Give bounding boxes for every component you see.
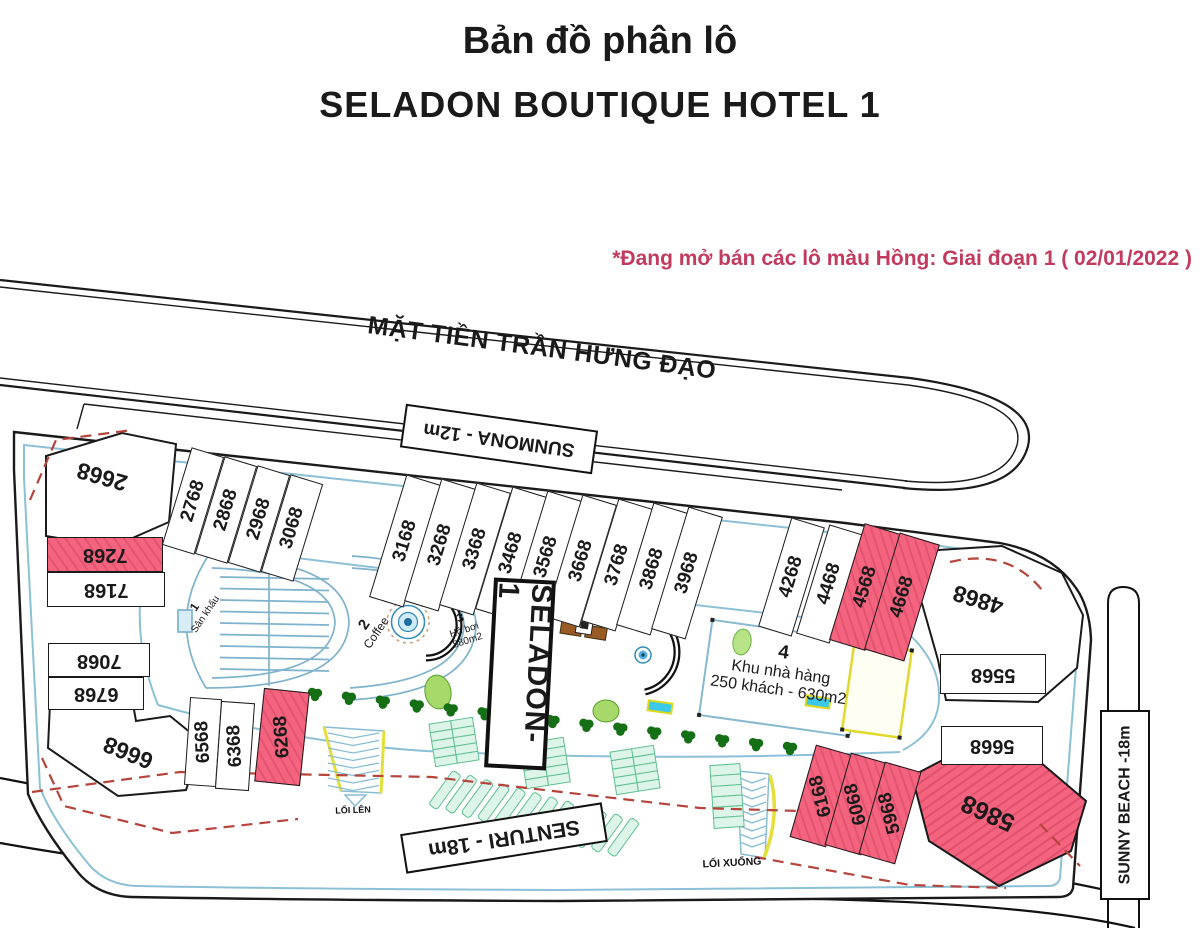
lot-number: 3668 — [564, 538, 597, 585]
lot-number: 6168 — [805, 773, 837, 819]
crosswalk-markers — [647, 700, 672, 713]
lot-5668: 5668 — [941, 726, 1043, 765]
lot-number: 4668 — [885, 574, 918, 621]
lot-6768: 6768 — [48, 677, 144, 710]
lot-number: 6768 — [74, 682, 119, 705]
lot-number: 5668 — [970, 734, 1015, 757]
lot-7268: 7268 — [47, 537, 163, 572]
lot-7068: 7068 — [48, 643, 150, 677]
lot-number: 5568 — [971, 663, 1016, 686]
street-label-sunny-beach: SUNNY BEACH -18m — [1100, 710, 1150, 900]
site-plan-drawing — [0, 0, 1200, 928]
page-subtitle: SELADON BOUTIQUE HOTEL 1 — [0, 84, 1200, 126]
lot-number: 4268 — [774, 554, 807, 601]
sunny-beach-text: SUNNY BEACH -18m — [1116, 726, 1134, 885]
lot-number: 7168 — [84, 578, 129, 601]
ramp-up-label: LỐI LÊN — [323, 804, 383, 816]
page-title: Bản đồ phân lô — [0, 20, 1200, 63]
lot-6368: 6368 — [215, 701, 255, 791]
lot-5568: 5568 — [940, 654, 1046, 694]
lot-number: 3368 — [458, 526, 491, 573]
lot-number: 6268 — [270, 715, 295, 759]
lot-number: 6568 — [191, 720, 215, 763]
lot-number: 3968 — [670, 550, 703, 597]
seladon-sign-text: SELADON- 1 — [489, 582, 550, 766]
lot-7168: 7168 — [47, 572, 165, 607]
lot-6268: 6268 — [254, 688, 310, 786]
lot-number: 5968 — [874, 790, 906, 836]
lot-map-page: Bản đồ phân lô SELADON BOUTIQUE HOTEL 1 … — [0, 0, 1200, 928]
lot-number: 7068 — [77, 649, 122, 672]
lot-number: 4568 — [848, 564, 881, 611]
amenity-num: 4 — [777, 642, 791, 665]
seladon-1-sign: SELADON- 1 — [484, 578, 556, 771]
lot-number: 6368 — [223, 724, 247, 767]
lot-number: 3068 — [275, 505, 308, 552]
sales-phase-note: *Đang mở bán các lô màu Hồng: Giai đoạn … — [612, 247, 1192, 271]
lot-number: 7268 — [83, 543, 128, 566]
